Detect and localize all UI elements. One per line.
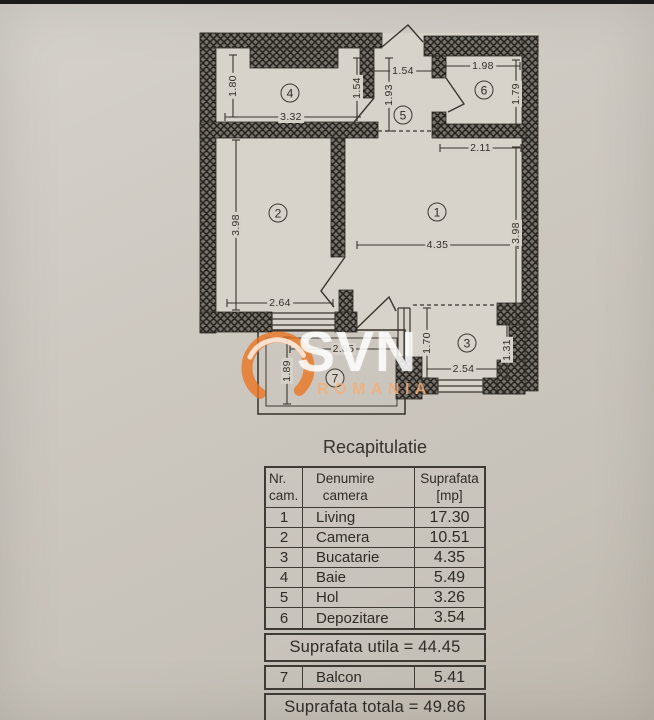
table-cell: 10.51 (415, 528, 484, 548)
table-cell: Bucatarie (303, 548, 415, 568)
table-cell: 3 (266, 548, 303, 568)
table-cell: 3.26 (415, 588, 484, 608)
subtotal-row: Suprafata utila = 44.45 (264, 633, 486, 662)
table-cell: 7 (266, 667, 303, 688)
total-text: Suprafata totala = 49.86 (266, 695, 484, 720)
balcony-row: 7Balcon5.41 (264, 665, 486, 690)
table-rows: 1Living17.302Camera10.513Bucatarie4.354B… (266, 508, 484, 628)
table-cell: Balcon (303, 667, 415, 688)
table-cell: Living (303, 508, 415, 528)
total-row: Suprafata totala = 49.86 (264, 693, 486, 720)
table-cell: 5 (266, 588, 303, 608)
recap-main-section: Nr.cam.DenumirecameraSuprafata[mp] 1Livi… (264, 466, 486, 630)
table-cell: 1 (266, 508, 303, 528)
floorplan-photo: 1.803.321.541.541.931.981.792.113.982.64… (0, 0, 654, 720)
recap-table: Recapitulatie Nr.cam.DenumirecameraSupra… (264, 437, 486, 720)
table-cell: Camera (303, 528, 415, 548)
table-cell: Hol (303, 588, 415, 608)
subtotal-text: Suprafata utila = 44.45 (266, 635, 484, 660)
table-cell: 6 (266, 608, 303, 628)
table-header-cell: Suprafata[mp] (415, 468, 484, 508)
table-header-cell: Nr.cam. (266, 468, 303, 508)
balcony-outline (258, 330, 405, 414)
table-header: Nr.cam.DenumirecameraSuprafata[mp] (266, 468, 484, 508)
table-cell: 17.30 (415, 508, 484, 528)
table-cell: 3.54 (415, 608, 484, 628)
recap-title: Recapitulatie (264, 437, 486, 458)
table-cell: Baie (303, 568, 415, 588)
table-header-cell: Denumirecamera (303, 468, 415, 508)
table-cell: Depozitare (303, 608, 415, 628)
table-cell: 5.41 (415, 667, 484, 688)
table-cell: 4 (266, 568, 303, 588)
table-cell: 2 (266, 528, 303, 548)
table-cell: 5.49 (415, 568, 484, 588)
table-cell: 4.35 (415, 548, 484, 568)
